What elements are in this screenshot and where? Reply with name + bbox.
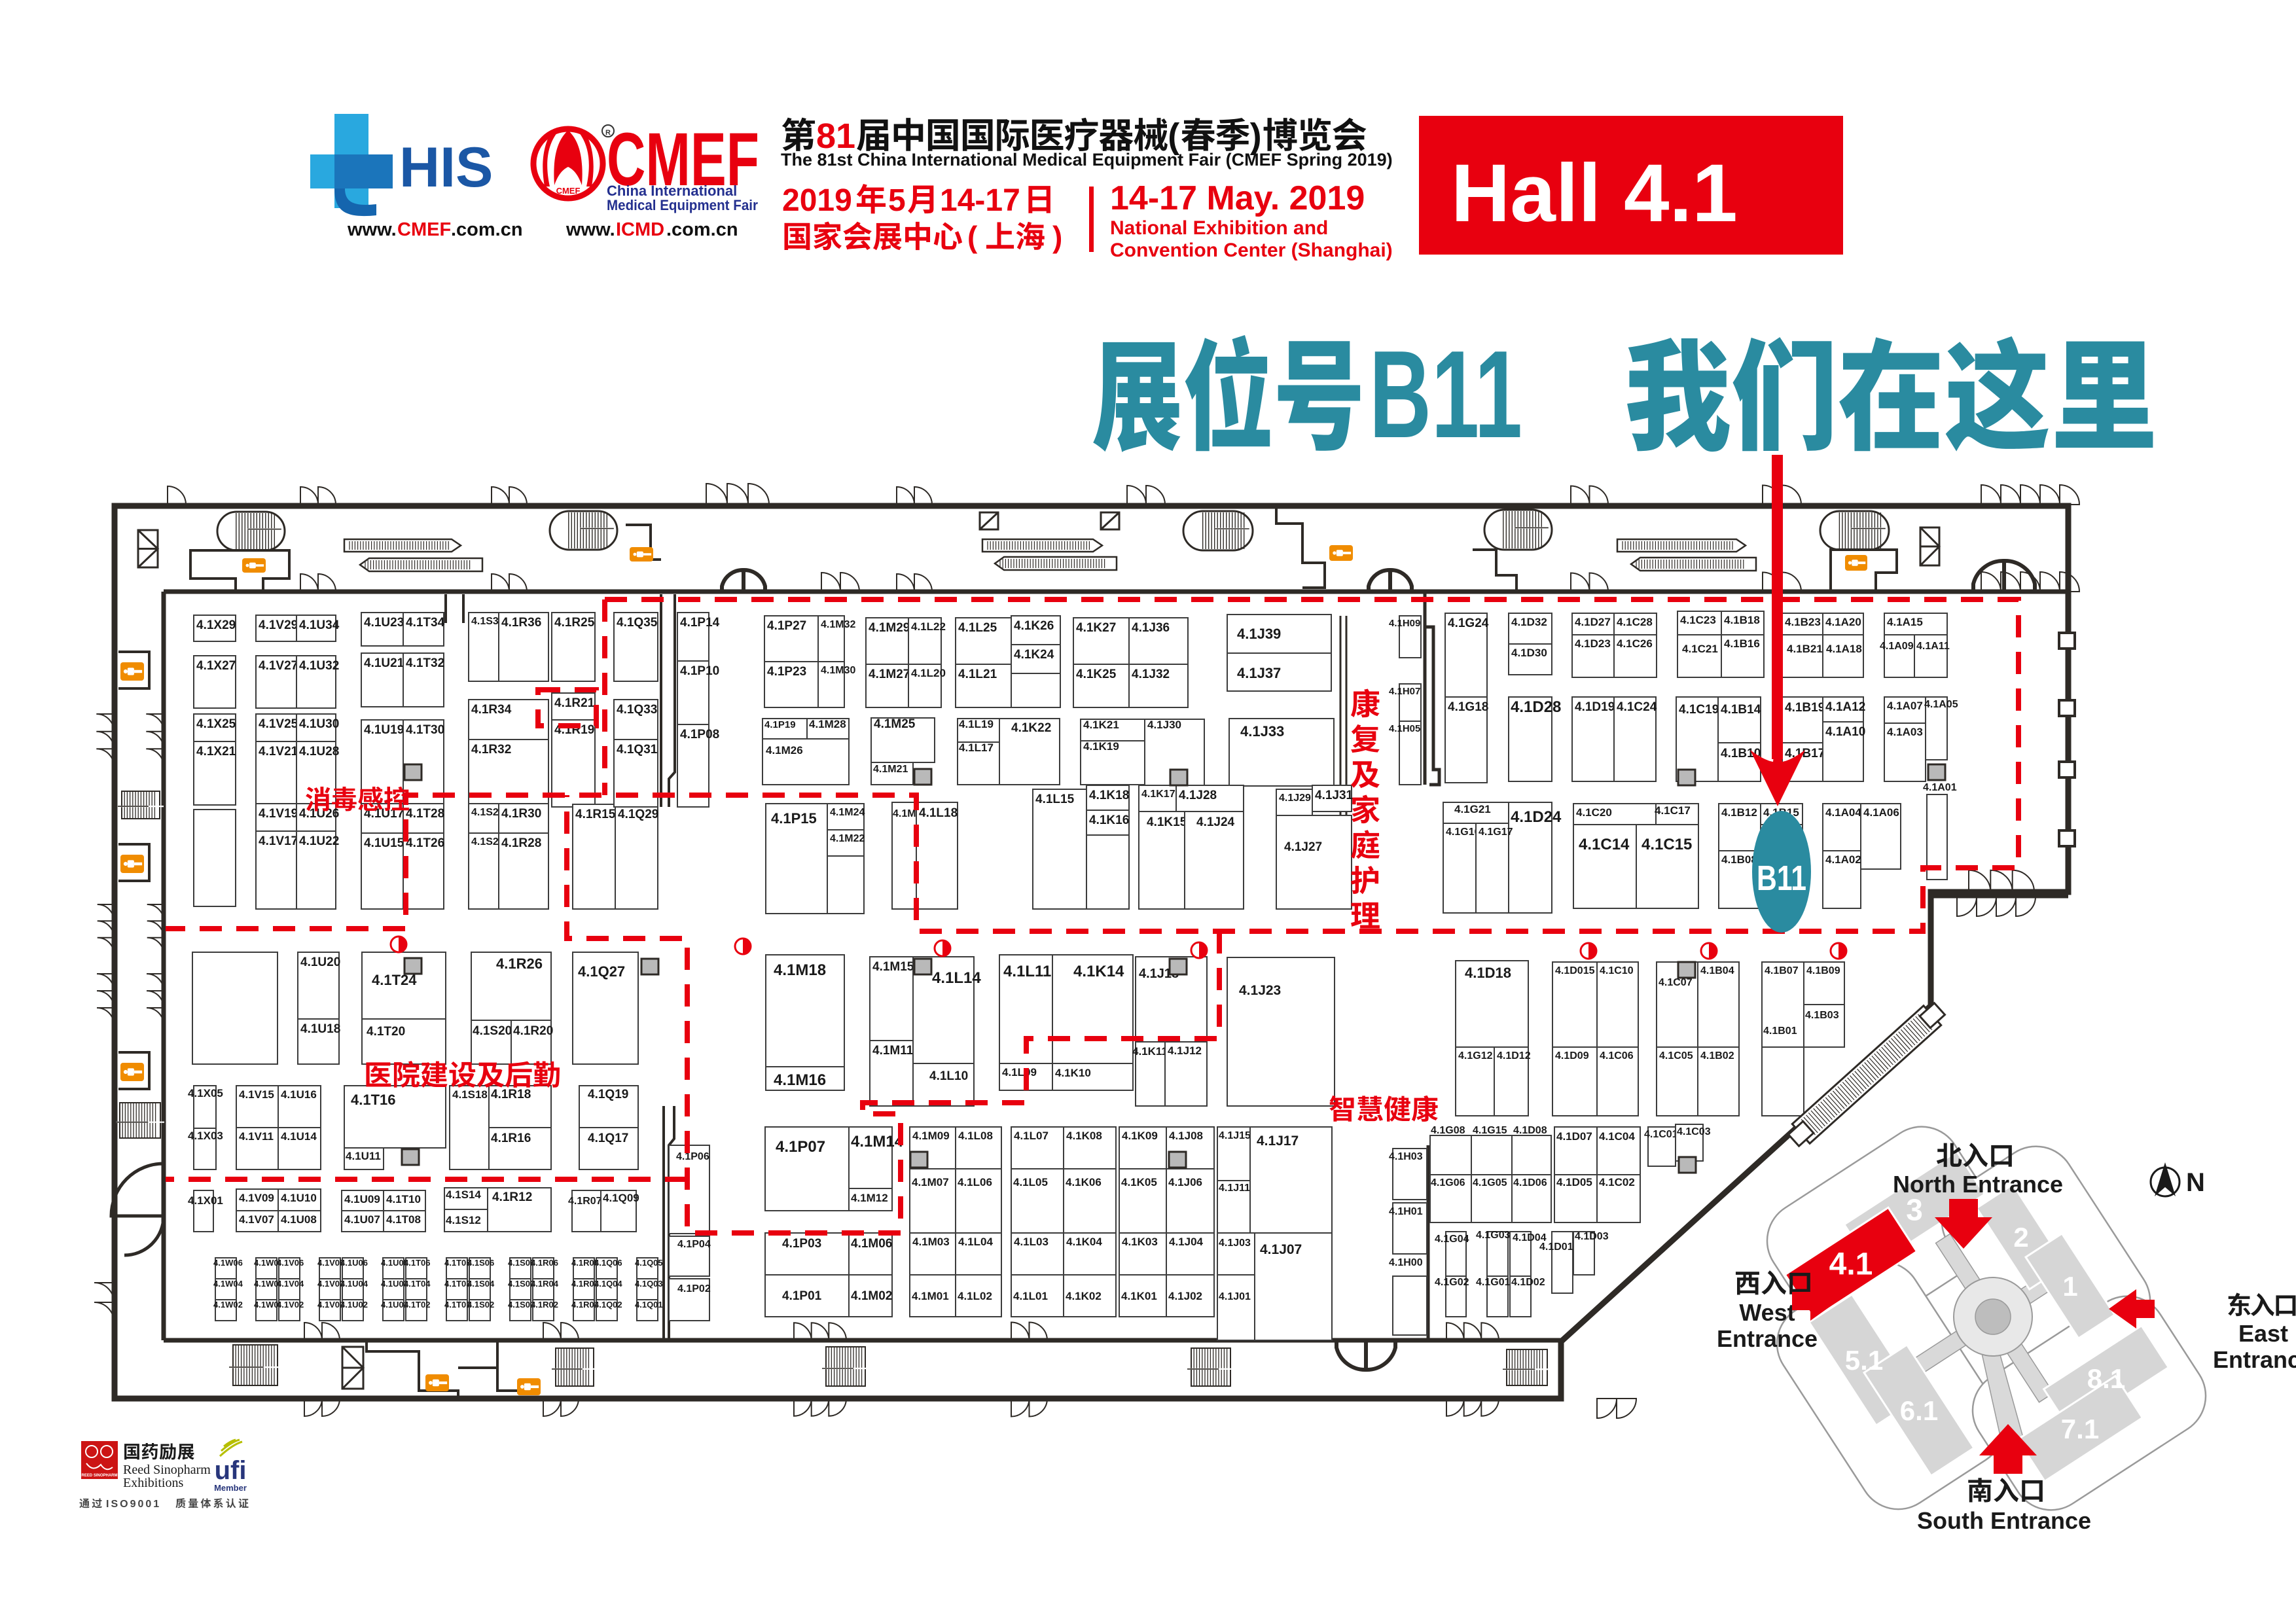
svg-text:4.1C20: 4.1C20 (1576, 806, 1612, 819)
svg-text:4.1V29: 4.1V29 (259, 618, 298, 632)
svg-text:4.1U18: 4.1U18 (300, 1022, 340, 1036)
svg-text:4.1D27: 4.1D27 (1575, 616, 1611, 628)
svg-text:4.1K17: 4.1K17 (1141, 789, 1175, 800)
svg-text:4.1P07: 4.1P07 (776, 1138, 825, 1156)
svg-text:4.1K14: 4.1K14 (1073, 963, 1124, 980)
svg-text:4.1M01: 4.1M01 (912, 1290, 949, 1302)
svg-text:N: N (2186, 1168, 2205, 1197)
svg-text:4.1R25: 4.1R25 (554, 616, 595, 630)
svg-text:4.1V27: 4.1V27 (259, 659, 298, 673)
svg-text:Reed Sinopharm: Reed Sinopharm (123, 1463, 211, 1477)
svg-text:4.1V19: 4.1V19 (259, 807, 298, 821)
svg-text:4.1Q31: 4.1Q31 (617, 743, 658, 757)
svg-text:4.1Q35: 4.1Q35 (617, 616, 658, 630)
svg-text:4.1V17: 4.1V17 (259, 834, 298, 848)
svg-text:4.1L05: 4.1L05 (1013, 1176, 1048, 1188)
svg-text:4.1J02: 4.1J02 (1168, 1290, 1202, 1302)
svg-text:4.1W02: 4.1W02 (213, 1300, 243, 1310)
svg-text:4.1J36: 4.1J36 (1132, 621, 1170, 635)
svg-text:4.1P23: 4.1P23 (767, 665, 806, 679)
svg-text:4.1A07: 4.1A07 (1887, 700, 1923, 712)
svg-text:4.1C10: 4.1C10 (1600, 965, 1634, 976)
svg-text:4.1D24: 4.1D24 (1511, 808, 1562, 826)
svg-text:4.1J04: 4.1J04 (1169, 1236, 1204, 1248)
svg-text:4.1D08: 4.1D08 (1513, 1125, 1547, 1136)
svg-text:CMEF: CMEF (397, 219, 451, 240)
svg-text:4.1K15: 4.1K15 (1147, 815, 1187, 829)
svg-text:4.1R20: 4.1R20 (513, 1024, 553, 1038)
svg-text:4.1R07: 4.1R07 (568, 1196, 602, 1207)
svg-text:Member: Member (214, 1483, 247, 1493)
svg-text:4.1J27: 4.1J27 (1284, 840, 1322, 854)
svg-text:4.1D28: 4.1D28 (1511, 698, 1561, 716)
svg-text:4.1U11: 4.1U11 (346, 1150, 381, 1162)
svg-text:4.1T10: 4.1T10 (386, 1193, 421, 1205)
svg-text:4.1T28: 4.1T28 (406, 807, 444, 821)
svg-text:4.1K11: 4.1K11 (1132, 1045, 1168, 1058)
svg-text:4.1U15: 4.1U15 (364, 836, 404, 850)
svg-text:4.1M15: 4.1M15 (872, 960, 914, 974)
svg-text:4.1U34: 4.1U34 (299, 618, 340, 632)
svg-text:4.1C14: 4.1C14 (1579, 836, 1630, 853)
svg-text:4.1G15: 4.1G15 (1473, 1125, 1507, 1136)
svg-text:B11: B11 (1757, 859, 1806, 898)
svg-text:Entrance: Entrance (1717, 1325, 1818, 1352)
svg-text:4.1B18: 4.1B18 (1724, 614, 1760, 626)
svg-text:4.1K10: 4.1K10 (1055, 1067, 1091, 1079)
svg-text:1: 1 (2062, 1271, 2077, 1302)
svg-text:4.1L03: 4.1L03 (1014, 1236, 1049, 1248)
svg-text:4.1A10: 4.1A10 (1825, 725, 1865, 739)
svg-text:4.1J03: 4.1J03 (1219, 1238, 1251, 1249)
svg-text:4.1M02: 4.1M02 (851, 1289, 892, 1303)
svg-text:4.1D23: 4.1D23 (1575, 637, 1611, 650)
svg-text:4.1L19: 4.1L19 (959, 718, 994, 730)
svg-text:4.1J39: 4.1J39 (1237, 626, 1281, 642)
svg-text:4.1H01: 4.1H01 (1389, 1206, 1423, 1217)
svg-text:4.1P27: 4.1P27 (767, 619, 806, 633)
svg-text:4.1U23: 4.1U23 (364, 616, 404, 630)
svg-text:4.1C23: 4.1C23 (1680, 614, 1716, 626)
svg-text:4.1D12: 4.1D12 (1497, 1050, 1531, 1061)
svg-text:4.1S18: 4.1S18 (452, 1088, 488, 1101)
svg-text:4.1K03: 4.1K03 (1122, 1236, 1158, 1248)
svg-text:): ) (1052, 220, 1062, 254)
svg-text:4.1B21: 4.1B21 (1787, 643, 1823, 655)
svg-text:4.1S20: 4.1S20 (473, 1024, 512, 1038)
svg-text:4.1T34: 4.1T34 (406, 616, 445, 630)
svg-text:4.1D06: 4.1D06 (1513, 1177, 1547, 1188)
svg-text:4.1T32: 4.1T32 (406, 656, 444, 670)
svg-text:4.1M07: 4.1M07 (912, 1176, 949, 1188)
svg-text:4.1R34: 4.1R34 (471, 703, 512, 717)
svg-text:4.1R21: 4.1R21 (554, 696, 595, 710)
svg-text:4.1J12: 4.1J12 (1168, 1044, 1202, 1057)
svg-text:4.1J30: 4.1J30 (1147, 719, 1181, 731)
svg-text:5.1: 5.1 (1845, 1345, 1883, 1376)
svg-text:4.1S14: 4.1S14 (446, 1188, 481, 1201)
svg-text:4.1L08: 4.1L08 (958, 1130, 993, 1142)
svg-text:4.1X01: 4.1X01 (188, 1194, 223, 1207)
svg-text:4.1A20: 4.1A20 (1825, 616, 1861, 628)
svg-text:4.1G12: 4.1G12 (1458, 1050, 1493, 1061)
svg-text:4.1Q01: 4.1Q01 (635, 1300, 663, 1310)
svg-text:4.1T02: 4.1T02 (404, 1300, 430, 1310)
svg-text:4.1B14: 4.1B14 (1721, 703, 1761, 717)
svg-text:South Entrance: South Entrance (1917, 1507, 2091, 1534)
svg-text:4.1K26: 4.1K26 (1014, 619, 1054, 633)
svg-text:4.1A06: 4.1A06 (1863, 806, 1899, 819)
svg-text:4.1G04: 4.1G04 (1435, 1234, 1469, 1245)
svg-text:2: 2 (2013, 1222, 2028, 1253)
svg-text:4.1U20: 4.1U20 (300, 955, 340, 969)
svg-text:4.1B07: 4.1B07 (1765, 965, 1799, 976)
svg-text:4.1H00: 4.1H00 (1389, 1257, 1423, 1268)
svg-text:4.1D32: 4.1D32 (1511, 616, 1547, 628)
svg-text:4.1D30: 4.1D30 (1511, 647, 1547, 659)
svg-text:4.1D09: 4.1D09 (1555, 1050, 1589, 1061)
svg-text:4.1K27: 4.1K27 (1076, 621, 1116, 635)
svg-text:4.1M25: 4.1M25 (874, 717, 916, 731)
svg-text:Hall 4.1: Hall 4.1 (1451, 148, 1738, 239)
svg-text:4.1J29: 4.1J29 (1279, 793, 1311, 804)
svg-text:4.1U14: 4.1U14 (281, 1130, 317, 1143)
svg-text:4.1W06: 4.1W06 (213, 1258, 243, 1268)
svg-text:4.1A01: 4.1A01 (1923, 782, 1957, 793)
svg-text:4.1L07: 4.1L07 (1014, 1130, 1049, 1142)
svg-text:4.1U21: 4.1U21 (364, 656, 404, 670)
svg-text:4.1K05: 4.1K05 (1121, 1176, 1157, 1188)
svg-text:4.1Q29: 4.1Q29 (618, 808, 658, 821)
svg-text:4.1P14: 4.1P14 (680, 616, 720, 630)
svg-text:REED SINOPHARM: REED SINOPHARM (81, 1474, 117, 1478)
svg-text:4.1L25: 4.1L25 (958, 621, 997, 635)
svg-text:4.1J15: 4.1J15 (1219, 1130, 1251, 1141)
svg-text:14-17 May. 2019: 14-17 May. 2019 (1110, 179, 1365, 217)
svg-text:4.1R36: 4.1R36 (501, 616, 541, 630)
svg-text:4.1U16: 4.1U16 (281, 1088, 317, 1101)
svg-text:4.1C01: 4.1C01 (1644, 1129, 1678, 1140)
svg-text:4.1G05: 4.1G05 (1473, 1177, 1507, 1188)
svg-text:4.1U07: 4.1U07 (344, 1213, 380, 1226)
svg-text:4.1U06: 4.1U06 (340, 1258, 368, 1268)
svg-text:www.: www. (347, 219, 397, 240)
svg-text:4.1D015: 4.1D015 (1555, 965, 1595, 976)
svg-text:4.1C21: 4.1C21 (1682, 643, 1718, 655)
svg-text:4.1S02: 4.1S02 (467, 1300, 494, 1310)
svg-text:4.1S04: 4.1S04 (467, 1279, 495, 1289)
svg-text:4.1B04: 4.1B04 (1700, 965, 1734, 976)
svg-text:www.: www. (565, 219, 615, 240)
svg-text:4.1J07: 4.1J07 (1260, 1242, 1302, 1257)
svg-text:4.1V11: 4.1V11 (239, 1130, 274, 1143)
svg-text:4.1C28: 4.1C28 (1617, 616, 1653, 628)
svg-text:4.1U28: 4.1U28 (299, 745, 339, 758)
svg-text:4.1X27: 4.1X27 (196, 659, 236, 673)
svg-text:4.1C17: 4.1C17 (1655, 804, 1691, 817)
svg-text:4.1J01: 4.1J01 (1219, 1291, 1251, 1302)
svg-text:4.1Q04: 4.1Q04 (594, 1279, 622, 1289)
svg-text:4.1J33: 4.1J33 (1240, 723, 1284, 740)
svg-text:4.1L17: 4.1L17 (959, 741, 994, 754)
svg-text:4.1C03: 4.1C03 (1677, 1126, 1711, 1137)
svg-text:6.1: 6.1 (1900, 1395, 1938, 1426)
svg-text:4.1G06: 4.1G06 (1431, 1177, 1465, 1188)
svg-text:4.1C15: 4.1C15 (1641, 836, 1692, 853)
svg-text:4.1J32: 4.1J32 (1132, 668, 1170, 681)
svg-text:4.1U32: 4.1U32 (299, 659, 339, 673)
svg-text:4.1A18: 4.1A18 (1826, 643, 1862, 655)
svg-text:4.1V04: 4.1V04 (277, 1279, 304, 1289)
svg-text:4.1P03: 4.1P03 (782, 1237, 821, 1251)
svg-text:4.1J23: 4.1J23 (1239, 983, 1281, 998)
svg-text:4.1A03: 4.1A03 (1887, 726, 1923, 738)
svg-text:4.1L14: 4.1L14 (932, 969, 981, 987)
svg-text:4.1M18: 4.1M18 (774, 961, 826, 979)
svg-text:4.1P01: 4.1P01 (782, 1289, 822, 1303)
svg-text:4.1D07: 4.1D07 (1556, 1130, 1592, 1143)
svg-text:4.1U30: 4.1U30 (299, 717, 339, 731)
svg-text:4.1R26: 4.1R26 (496, 955, 543, 972)
svg-text:HIS: HIS (399, 136, 493, 199)
svg-text:4.1R04: 4.1R04 (531, 1279, 559, 1289)
svg-text:4.1V15: 4.1V15 (239, 1088, 274, 1101)
svg-text:4.1G03: 4.1G03 (1476, 1230, 1511, 1241)
svg-text:.com.cn: .com.cn (451, 219, 523, 240)
svg-text:4.1J11: 4.1J11 (1219, 1183, 1250, 1194)
svg-text:4.1A02: 4.1A02 (1825, 853, 1861, 866)
svg-text:(: ( (967, 220, 978, 254)
svg-text:4.1X21: 4.1X21 (196, 745, 236, 758)
svg-text:4.1G21: 4.1G21 (1454, 803, 1491, 815)
svg-text:4.1M16: 4.1M16 (774, 1071, 826, 1089)
svg-text:4.1P15: 4.1P15 (771, 810, 817, 827)
svg-text:4.1Q06: 4.1Q06 (594, 1258, 622, 1268)
svg-text:4.1A11: 4.1A11 (1916, 641, 1950, 652)
svg-text:4.1A15: 4.1A15 (1887, 616, 1923, 628)
svg-text:4.1K02: 4.1K02 (1066, 1290, 1102, 1302)
svg-text:4.1R12: 4.1R12 (492, 1190, 532, 1204)
svg-text:4.1B09: 4.1B09 (1806, 965, 1840, 976)
svg-text:4.1K09: 4.1K09 (1122, 1130, 1158, 1142)
svg-text:4.1Q33: 4.1Q33 (617, 703, 657, 717)
svg-text:4.1G01: 4.1G01 (1476, 1277, 1511, 1288)
svg-text:4.1K06: 4.1K06 (1066, 1176, 1102, 1188)
svg-text:4.1S06: 4.1S06 (467, 1258, 494, 1268)
svg-text:4.1R02: 4.1R02 (531, 1300, 558, 1310)
svg-text:4.1K16: 4.1K16 (1089, 813, 1129, 827)
svg-text:4.1M28: 4.1M28 (809, 718, 846, 730)
svg-text:4.1: 4.1 (1829, 1247, 1873, 1281)
svg-text:4.1T08: 4.1T08 (386, 1213, 421, 1226)
svg-text:4.1T06: 4.1T06 (404, 1258, 430, 1268)
svg-text:4.1U10: 4.1U10 (281, 1192, 317, 1204)
svg-text:4.1V21: 4.1V21 (259, 745, 298, 758)
svg-text:4.1L06: 4.1L06 (958, 1176, 992, 1188)
svg-text:4.1G18: 4.1G18 (1448, 700, 1488, 714)
svg-text:4.1Q05: 4.1Q05 (635, 1258, 663, 1268)
svg-text:4.1T04: 4.1T04 (404, 1279, 431, 1289)
svg-text:4.1T16: 4.1T16 (351, 1092, 396, 1108)
svg-text:4.1M24: 4.1M24 (830, 807, 865, 818)
svg-text:4.1Q19: 4.1Q19 (588, 1088, 628, 1101)
svg-text:4.1A05: 4.1A05 (1924, 699, 1958, 710)
svg-text:4.1C05: 4.1C05 (1659, 1050, 1693, 1061)
svg-text:4.1S12: 4.1S12 (446, 1214, 481, 1226)
svg-text:The 81st China International M: The 81st China International Medical Equ… (781, 150, 1393, 169)
svg-text:4.1Q17: 4.1Q17 (588, 1132, 628, 1145)
svg-text:4.1J08: 4.1J08 (1169, 1130, 1203, 1142)
svg-text:Entrance: Entrance (2213, 1346, 2296, 1373)
svg-text:4.1L15: 4.1L15 (1035, 793, 1075, 806)
svg-text:4.1D19: 4.1D19 (1575, 700, 1615, 714)
svg-text:4.1M32: 4.1M32 (821, 619, 855, 630)
svg-text:2019: 2019 (782, 183, 852, 218)
svg-text:4.1U26: 4.1U26 (299, 807, 339, 821)
svg-text:ufi: ufi (215, 1456, 247, 1485)
svg-text:4.1H09: 4.1H09 (1389, 618, 1420, 629)
svg-text:4.1B12: 4.1B12 (1721, 806, 1757, 819)
svg-text:4.1L11: 4.1L11 (1003, 963, 1051, 980)
svg-text:4.1L01: 4.1L01 (1013, 1290, 1048, 1302)
svg-text:4.1X29: 4.1X29 (196, 618, 236, 632)
svg-text:4.1C06: 4.1C06 (1600, 1050, 1634, 1061)
svg-text:4.1X03: 4.1X03 (188, 1130, 223, 1142)
svg-text:4.1K24: 4.1K24 (1014, 648, 1054, 662)
svg-text:4.1J37: 4.1J37 (1237, 665, 1281, 681)
svg-text:4.1C24: 4.1C24 (1617, 700, 1657, 714)
svg-text:4.1V07: 4.1V07 (239, 1213, 274, 1226)
svg-text:.com.cn: .com.cn (666, 219, 738, 240)
svg-text:4.1C04: 4.1C04 (1599, 1130, 1635, 1143)
svg-text:4.1L20: 4.1L20 (911, 667, 946, 679)
svg-text:5: 5 (888, 183, 906, 218)
svg-text:4.1J28: 4.1J28 (1179, 789, 1217, 802)
svg-text:4.1M22: 4.1M22 (830, 833, 865, 844)
svg-text:4.1P08: 4.1P08 (680, 728, 719, 741)
svg-text:4.1M29: 4.1M29 (869, 621, 910, 635)
svg-text:4.1D01: 4.1D01 (1539, 1241, 1573, 1253)
svg-text:4.1V02: 4.1V02 (277, 1300, 304, 1310)
svg-text:4.1L04: 4.1L04 (958, 1236, 993, 1248)
svg-text:4.1L02: 4.1L02 (958, 1290, 992, 1302)
svg-text:4.1Q09: 4.1Q09 (603, 1192, 639, 1204)
svg-text:4.1R32: 4.1R32 (471, 743, 511, 757)
svg-text:4.1B03: 4.1B03 (1805, 1010, 1839, 1021)
svg-text:4.1J17: 4.1J17 (1257, 1133, 1299, 1149)
svg-text:4.1B17: 4.1B17 (1785, 747, 1825, 760)
svg-text:4.1D03: 4.1D03 (1575, 1231, 1609, 1242)
svg-text:4.1W04: 4.1W04 (213, 1279, 243, 1289)
svg-text:4.1J24: 4.1J24 (1196, 815, 1235, 829)
svg-text:4.1C07: 4.1C07 (1659, 977, 1693, 988)
svg-text:4.1M12: 4.1M12 (851, 1192, 888, 1204)
svg-text:4.1Q02: 4.1Q02 (594, 1300, 622, 1310)
svg-text:4.1M11: 4.1M11 (872, 1044, 914, 1058)
svg-text:National Exhibition and: National Exhibition and (1110, 217, 1328, 239)
svg-text:4.1R06: 4.1R06 (531, 1258, 558, 1268)
svg-text:4.1B01: 4.1B01 (1763, 1026, 1797, 1037)
svg-text:4.1K18: 4.1K18 (1089, 789, 1129, 802)
svg-text:4.1X05: 4.1X05 (188, 1087, 223, 1099)
svg-text:4.1K22: 4.1K22 (1011, 721, 1051, 735)
svg-text:B11: B11 (1369, 325, 1522, 464)
svg-text:4.1D18: 4.1D18 (1465, 965, 1511, 981)
svg-text:4.1G17: 4.1G17 (1479, 827, 1513, 838)
svg-text:4.1K19: 4.1K19 (1083, 740, 1119, 753)
svg-text:4.1C19: 4.1C19 (1679, 703, 1719, 717)
svg-text:4.1Q27: 4.1Q27 (578, 963, 625, 980)
svg-text:4.1L21: 4.1L21 (958, 668, 997, 681)
svg-text:4.1T20: 4.1T20 (367, 1025, 405, 1039)
svg-text:4.1U19: 4.1U19 (364, 723, 404, 737)
svg-text:4.1P10: 4.1P10 (680, 664, 719, 678)
svg-text:4.1L22: 4.1L22 (911, 620, 946, 633)
svg-text:4.1V09: 4.1V09 (239, 1192, 274, 1204)
svg-text:4.1M06: 4.1M06 (851, 1237, 892, 1251)
svg-text:4.1B19: 4.1B19 (1785, 701, 1825, 715)
svg-text:4.1R30: 4.1R30 (501, 807, 541, 821)
svg-text:4.1U22: 4.1U22 (299, 834, 339, 848)
svg-text:4.1C26: 4.1C26 (1617, 637, 1653, 650)
svg-text:ISO9001: ISO9001 (106, 1499, 161, 1510)
svg-text:4.1B08: 4.1B08 (1721, 853, 1757, 866)
svg-text:4.1J31: 4.1J31 (1315, 789, 1354, 802)
svg-text:4.1M26: 4.1M26 (766, 744, 803, 757)
svg-text:4.1B02: 4.1B02 (1700, 1050, 1734, 1061)
svg-text:4.1P02: 4.1P02 (677, 1283, 711, 1294)
svg-text:4.1G24: 4.1G24 (1448, 616, 1489, 630)
svg-text:4.1A09: 4.1A09 (1880, 641, 1914, 652)
svg-text:4.1D02: 4.1D02 (1511, 1277, 1545, 1288)
svg-text:Medical Equipment Fair: Medical Equipment Fair (607, 197, 758, 213)
svg-text:8.1: 8.1 (2087, 1363, 2125, 1394)
svg-text:4.1M03: 4.1M03 (912, 1236, 950, 1248)
svg-text:4.1U09: 4.1U09 (344, 1193, 380, 1205)
svg-text:4.1T26: 4.1T26 (406, 836, 444, 850)
svg-text:West: West (1739, 1299, 1795, 1326)
svg-text:4.1P19: 4.1P19 (764, 719, 796, 730)
svg-text:East: East (2238, 1320, 2288, 1347)
svg-text:4.1H05: 4.1H05 (1389, 723, 1420, 734)
svg-text:4.1U02: 4.1U02 (340, 1300, 368, 1310)
svg-text:4.1L18: 4.1L18 (919, 806, 958, 820)
svg-text:4.1G08: 4.1G08 (1431, 1125, 1465, 1136)
svg-text:4.1K25: 4.1K25 (1076, 668, 1117, 681)
svg-text:4.1C02: 4.1C02 (1599, 1176, 1635, 1188)
svg-text:4.1G02: 4.1G02 (1435, 1277, 1469, 1288)
svg-text:4.1A04: 4.1A04 (1825, 806, 1861, 819)
svg-text:4.1K21: 4.1K21 (1083, 719, 1119, 731)
svg-text:4.1V06: 4.1V06 (277, 1258, 304, 1268)
svg-text:4.1U08: 4.1U08 (281, 1213, 317, 1226)
svg-text:4.1M09: 4.1M09 (912, 1130, 950, 1142)
svg-text:4.1H03: 4.1H03 (1389, 1151, 1423, 1162)
svg-text:4.1M27: 4.1M27 (869, 668, 910, 681)
svg-text:North Entrance: North Entrance (1893, 1171, 2063, 1198)
svg-text:4.1L10: 4.1L10 (929, 1069, 968, 1083)
svg-text:4.1B23: 4.1B23 (1785, 616, 1821, 628)
svg-text:4.1K08: 4.1K08 (1066, 1130, 1102, 1142)
svg-text:4.1M30: 4.1M30 (821, 665, 855, 676)
svg-text:4.1K04: 4.1K04 (1066, 1236, 1102, 1248)
svg-text:4.1R15: 4.1R15 (575, 808, 616, 821)
svg-text:4.1M21: 4.1M21 (873, 764, 908, 775)
svg-text:4.1L09: 4.1L09 (1002, 1066, 1037, 1079)
svg-text:4.1R28: 4.1R28 (501, 836, 541, 850)
svg-text:4.1A12: 4.1A12 (1825, 700, 1865, 714)
svg-text:4.1M14: 4.1M14 (851, 1133, 904, 1150)
